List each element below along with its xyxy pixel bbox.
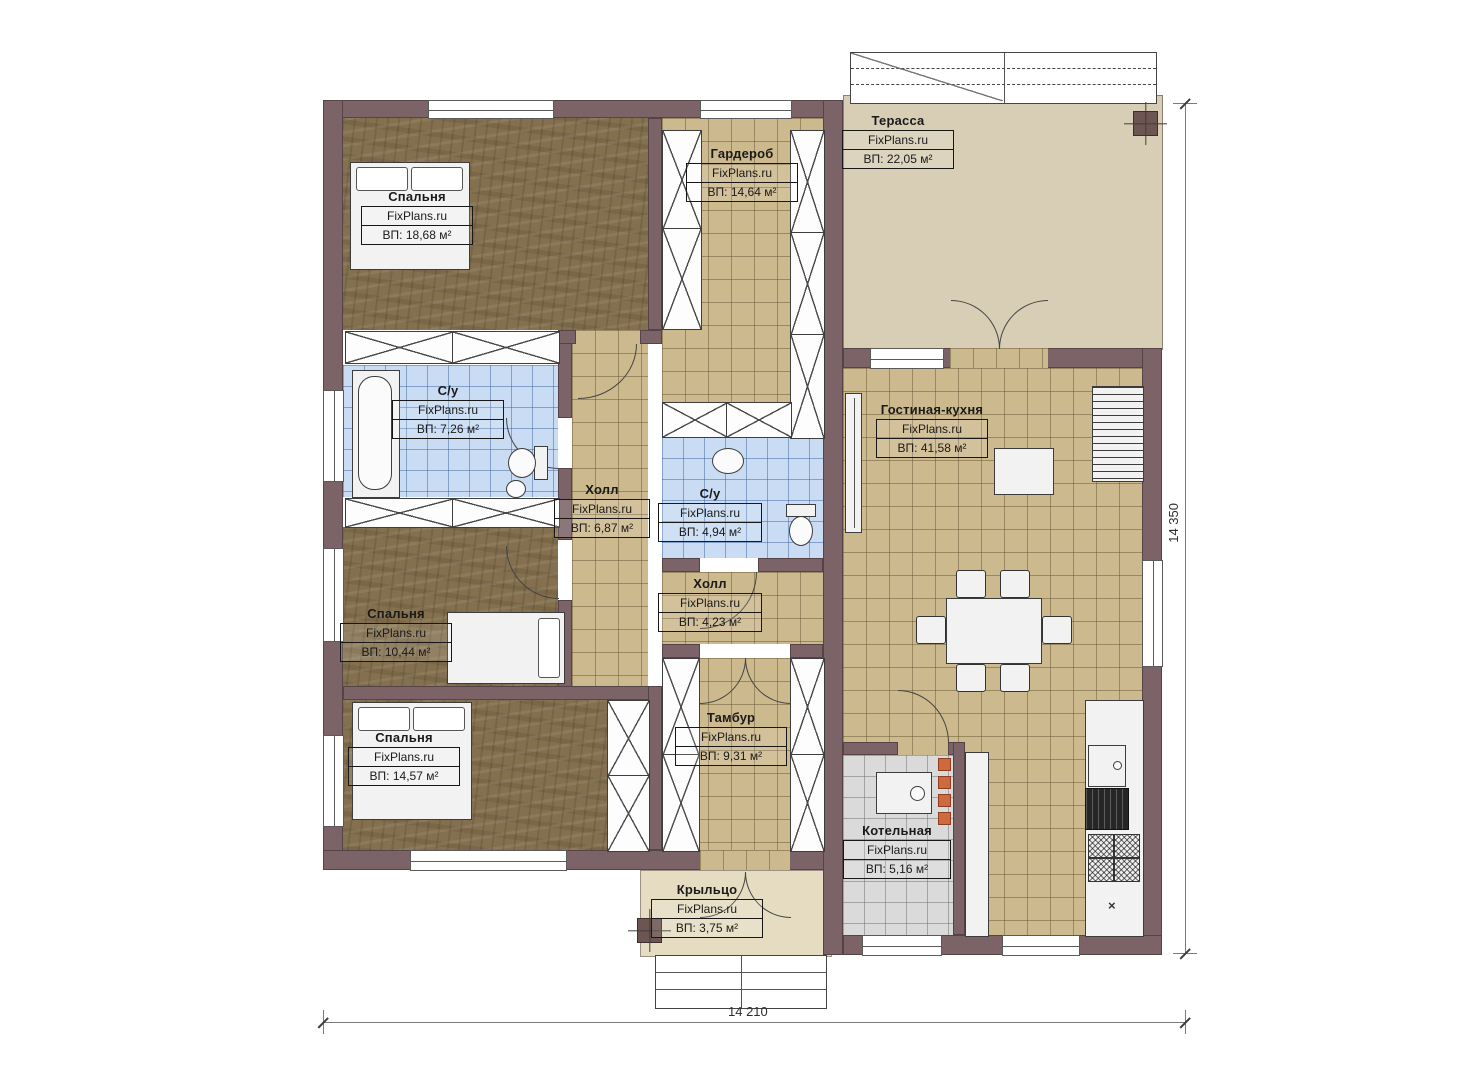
wall (843, 742, 898, 755)
wall (648, 118, 662, 330)
window (862, 935, 942, 956)
window (700, 100, 792, 119)
insulated-wall (452, 498, 560, 528)
insulated-wall (607, 775, 650, 852)
dimension-width-label: 14 210 (728, 1004, 768, 1019)
oven (1088, 834, 1114, 858)
window (1002, 935, 1080, 956)
insulated-wall (726, 402, 792, 438)
room-label-living-kitchen: Гостиная-кухня FixPlans.ru ВП: 41,58 м² (862, 402, 1002, 458)
room-name: Терасса (872, 113, 925, 128)
room-label-vestibule: Тамбур FixPlans.ru ВП: 9,31 м² (671, 710, 791, 766)
panel-line (854, 398, 855, 528)
chair (1000, 664, 1030, 692)
toilet-tank (534, 446, 548, 480)
room-watermark: FixPlans.ru (340, 623, 452, 643)
room-area: ВП: 5,16 м² (843, 859, 951, 879)
column-marker (1133, 111, 1158, 136)
room-watermark: FixPlans.ru (686, 163, 798, 183)
room-area: ВП: 10,44 м² (340, 642, 452, 662)
room-name: Гардероб (710, 146, 773, 161)
porch-steps (655, 955, 827, 1009)
boiler-unit (938, 758, 951, 771)
room-name: С/у (700, 486, 721, 501)
room-watermark: FixPlans.ru (876, 419, 988, 439)
room-label-hall-1: Холл FixPlans.ru ВП: 6,87 м² (552, 482, 652, 538)
appliance (1088, 858, 1114, 882)
steps-slope-line (851, 53, 1003, 101)
room-area: ВП: 9,31 м² (675, 746, 787, 766)
wall (640, 330, 662, 344)
toilet-bowl (789, 516, 813, 546)
room-area: ВП: 7,26 м² (392, 419, 504, 439)
room-name: Котельная (862, 823, 932, 838)
kitchen-sink (1088, 745, 1126, 787)
pillow (411, 167, 463, 191)
pillow (538, 618, 560, 678)
floor-plan: × Спальня FixPlans.ru ВП: 18,68 м² Гарде… (0, 0, 1473, 1080)
room-watermark: FixPlans.ru (843, 840, 951, 860)
wall (662, 558, 700, 572)
room-label-bedroom-2: Спальня FixPlans.ru ВП: 10,44 м² (336, 606, 456, 662)
pillow (358, 707, 410, 731)
radiator-panel (845, 393, 862, 533)
toilet-bowl (508, 448, 536, 478)
chair (956, 664, 986, 692)
room-area: ВП: 22,05 м² (842, 149, 954, 169)
tub-basin (358, 376, 392, 490)
chair (916, 616, 946, 644)
room-watermark: FixPlans.ru (348, 747, 460, 767)
insulated-wall (790, 658, 825, 756)
cabinet-cross-icon: × (1108, 898, 1116, 913)
wall (758, 558, 823, 572)
stove (1085, 788, 1129, 830)
kitchen-island (994, 448, 1054, 495)
insulated-wall (452, 331, 560, 364)
room-label-bedroom-3: Спальня FixPlans.ru ВП: 14,57 м² (344, 730, 464, 786)
room-label-bath-1: С/у FixPlans.ru ВП: 7,26 м² (388, 383, 508, 439)
room-area: ВП: 4,94 м² (658, 522, 762, 542)
wall (662, 644, 700, 658)
room-watermark: FixPlans.ru (675, 727, 787, 747)
room-area: ВП: 14,57 м² (348, 766, 460, 786)
room-label-bedroom-1: Спальня FixPlans.ru ВП: 18,68 м² (357, 189, 477, 245)
chair (1042, 616, 1072, 644)
room-label-hall-2: Холл FixPlans.ru ВП: 4,23 м² (655, 576, 765, 632)
wall (343, 686, 662, 700)
room-name: Спальня (388, 189, 446, 204)
room-label-boiler: Котельная FixPlans.ru ВП: 5,16 м² (838, 823, 956, 879)
dining-table (946, 598, 1042, 664)
washer (876, 772, 932, 814)
room-area: ВП: 41,58 м² (876, 438, 988, 458)
room-label-terrace: Терасса FixPlans.ru ВП: 22,05 м² (838, 113, 958, 169)
dimension-height-label: 14 350 (1166, 503, 1181, 543)
wall (790, 644, 823, 658)
appliance (1114, 858, 1140, 882)
insulated-wall (345, 331, 454, 364)
sink (712, 448, 744, 474)
chair (1000, 570, 1030, 598)
wall (648, 686, 662, 850)
boiler-unit (938, 776, 951, 789)
oven (1114, 834, 1140, 858)
room-label-porch: Крыльцо FixPlans.ru ВП: 3,75 м² (647, 882, 767, 938)
window (323, 735, 344, 827)
room-name: Крыльцо (677, 882, 738, 897)
window (428, 100, 554, 119)
insulated-wall (345, 498, 454, 528)
insulated-wall (790, 232, 825, 336)
room-watermark: FixPlans.ru (361, 206, 473, 226)
pillow (413, 707, 465, 731)
room-name: Тамбур (707, 710, 755, 725)
room-area: ВП: 3,75 м² (651, 918, 763, 938)
room-watermark: FixPlans.ru (842, 130, 954, 150)
room-area: ВП: 14,64 м² (686, 182, 798, 202)
insulated-wall (607, 700, 650, 777)
room-name: Спальня (375, 730, 433, 745)
insulated-wall (790, 754, 825, 852)
window (870, 348, 944, 369)
steps-center-line (1004, 53, 1005, 103)
insulated-wall (662, 228, 702, 330)
insulated-wall (790, 334, 825, 439)
pillow (356, 167, 408, 191)
room-area: ВП: 18,68 м² (361, 225, 473, 245)
chair (956, 570, 986, 598)
boiler-counter (965, 752, 989, 937)
window (1142, 560, 1163, 667)
room-name: Холл (693, 576, 726, 591)
steps-center-line (741, 956, 742, 1008)
room-name: Спальня (367, 606, 425, 621)
room-area: ВП: 6,87 м² (554, 518, 650, 538)
room-watermark: FixPlans.ru (658, 503, 762, 523)
door-opening (950, 348, 1048, 368)
room-label-wardrobe: Гардероб FixPlans.ru ВП: 14,64 м² (682, 146, 802, 202)
faucet (1113, 761, 1122, 770)
room-watermark: FixPlans.ru (554, 499, 650, 519)
dimension-line-bottom (323, 1022, 1185, 1023)
sink (506, 480, 526, 498)
window (323, 390, 344, 482)
room-watermark: FixPlans.ru (658, 593, 762, 613)
room-label-bath-2: С/у FixPlans.ru ВП: 4,94 м² (655, 486, 765, 542)
wall (558, 330, 576, 344)
window (410, 850, 567, 871)
washer-door (910, 786, 925, 801)
kitchen-tall-cabinet (1092, 386, 1144, 482)
dimension-line-right (1185, 103, 1186, 953)
room-watermark: FixPlans.ru (392, 400, 504, 420)
insulated-wall (662, 402, 728, 438)
room-name: Холл (585, 482, 618, 497)
bed (447, 612, 565, 684)
room-area: ВП: 4,23 м² (658, 612, 762, 632)
door-opening (700, 850, 790, 870)
room-watermark: FixPlans.ru (651, 899, 763, 919)
boiler-unit (938, 794, 951, 807)
terrace-steps (850, 52, 1157, 104)
room-name: Гостиная-кухня (881, 402, 983, 417)
insulated-wall (662, 754, 700, 852)
room-name: С/у (438, 383, 459, 398)
